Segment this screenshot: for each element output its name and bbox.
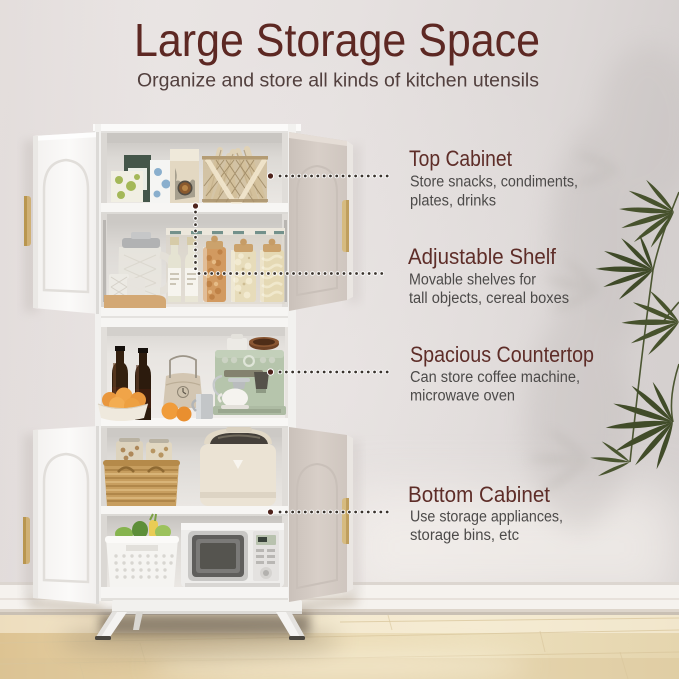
svg-text:Top Cabinet: Top Cabinet: [409, 146, 512, 171]
svg-text:Bottom Cabinet: Bottom Cabinet: [408, 482, 550, 507]
svg-text:Spacious Countertop: Spacious Countertop: [410, 342, 594, 367]
svg-text:Large Storage Space: Large Storage Space: [134, 14, 540, 66]
svg-text:Organize and store all kinds o: Organize and store all kinds of kitchen …: [137, 70, 539, 92]
svg-text:Use storage appliances,: Use storage appliances,: [410, 509, 563, 526]
svg-text:Adjustable Shelf: Adjustable Shelf: [408, 244, 557, 269]
svg-text:plates, drinks: plates, drinks: [410, 193, 496, 210]
svg-text:Can store coffee machine,: Can store coffee machine,: [410, 369, 580, 386]
svg-text:microwave oven: microwave oven: [410, 388, 515, 405]
svg-text:Store snacks, condiments,: Store snacks, condiments,: [410, 174, 578, 191]
svg-text:storage bins, etc: storage bins, etc: [410, 527, 519, 544]
svg-text:tall objects, cereal boxes: tall objects, cereal boxes: [409, 290, 569, 307]
svg-text:Movable shelves for: Movable shelves for: [409, 272, 536, 289]
